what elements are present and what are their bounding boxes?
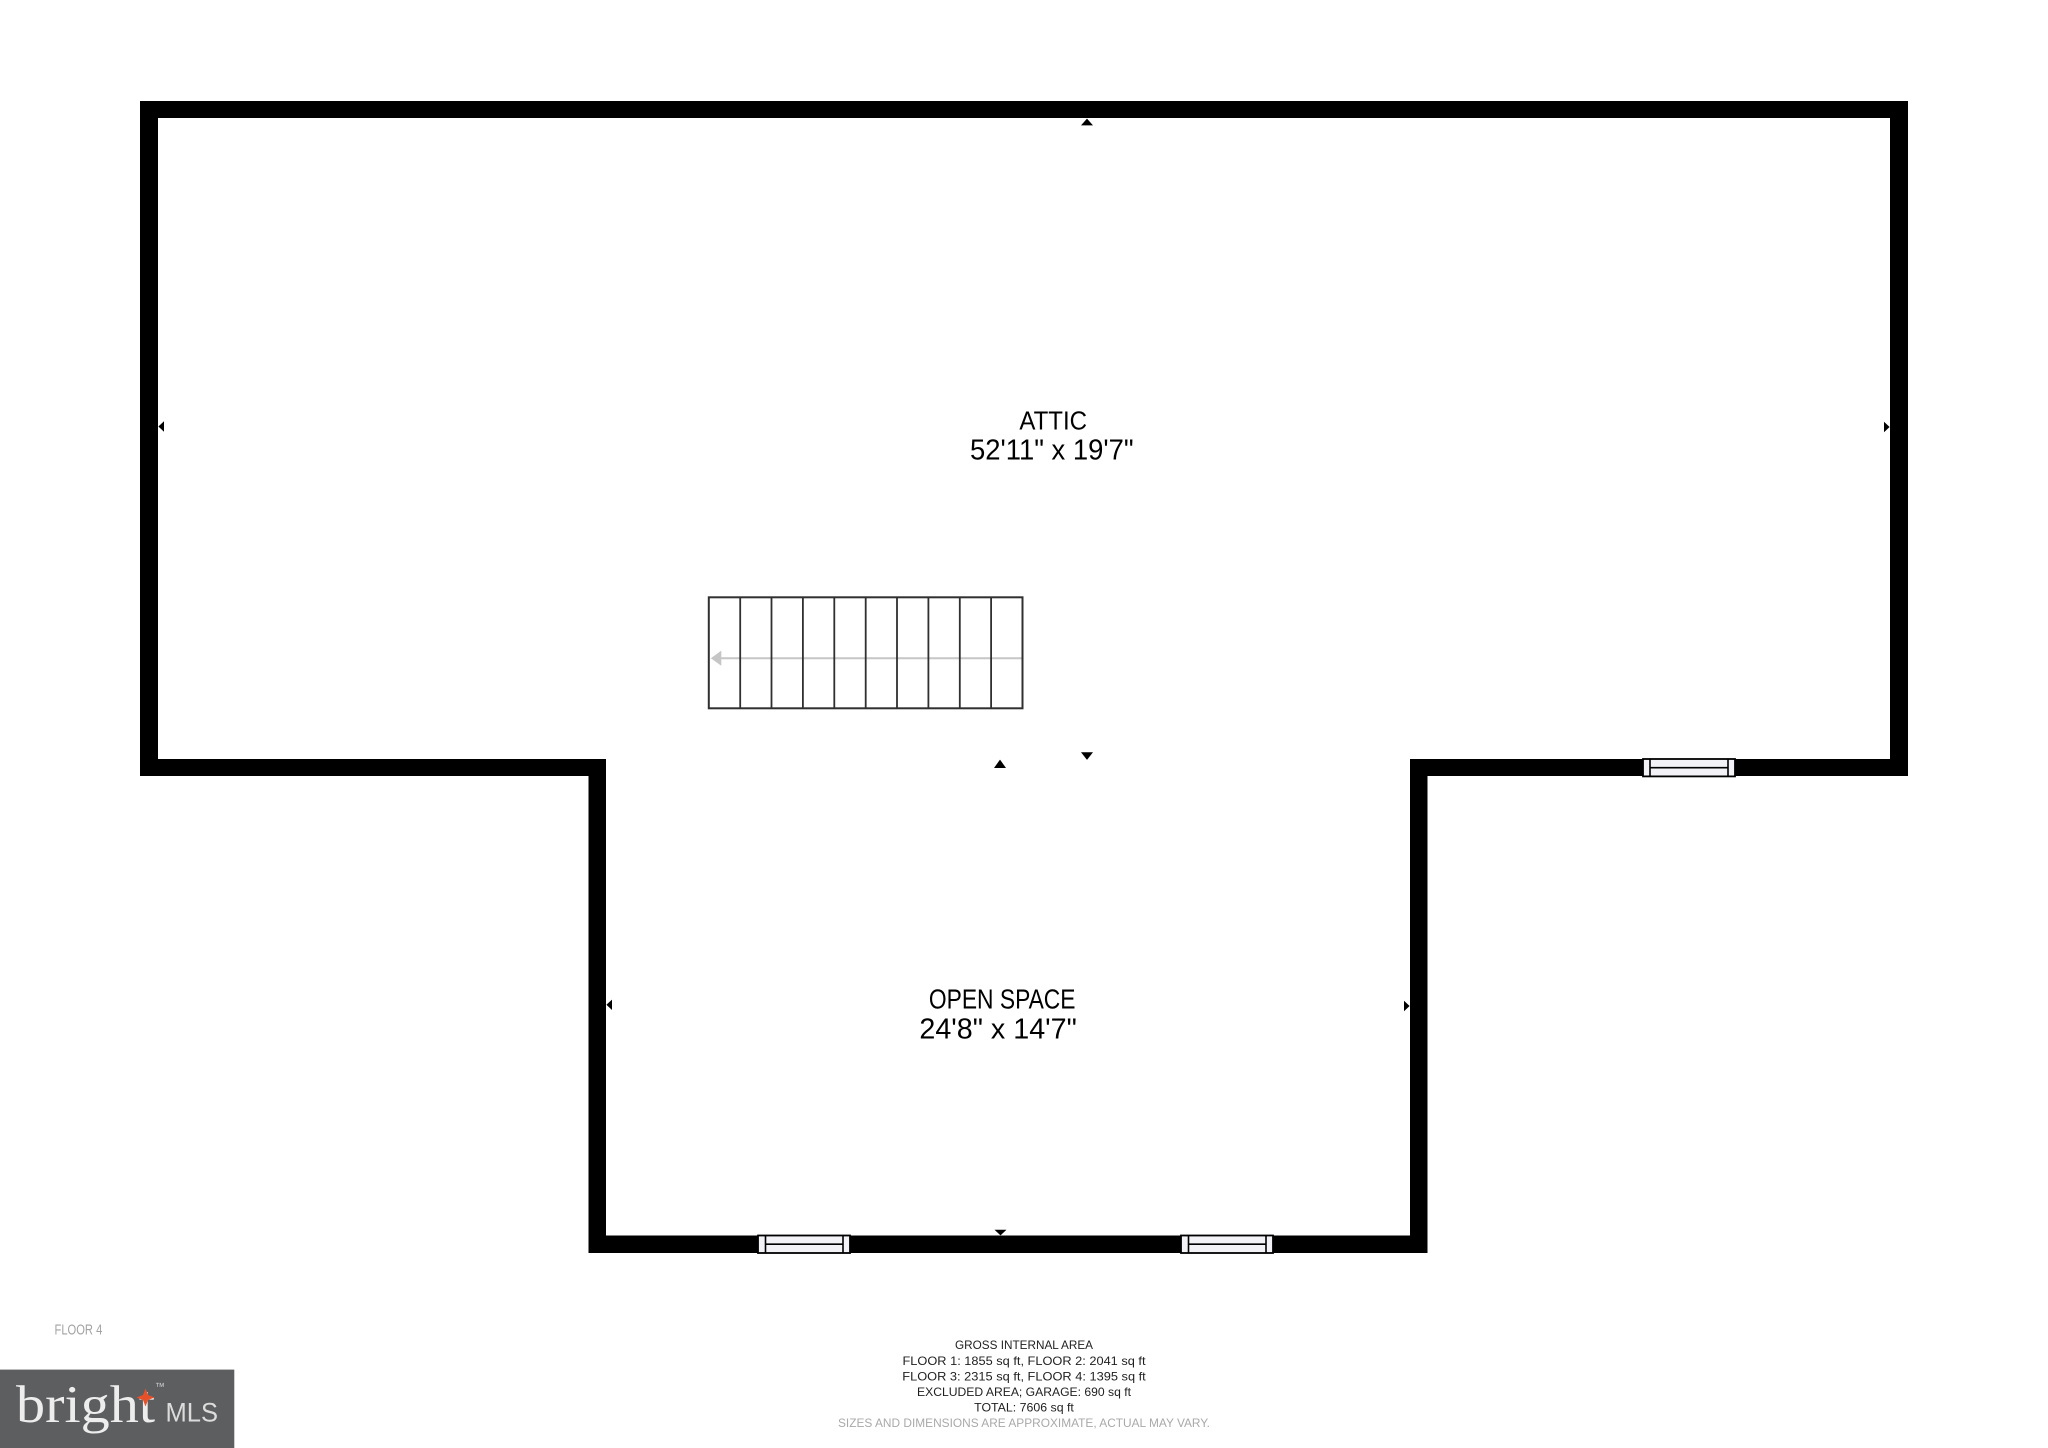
svg-text:ATTIC: ATTIC [1019, 406, 1087, 436]
svg-text:52'11" x 19'7": 52'11" x 19'7" [970, 435, 1134, 467]
svg-text:FLOOR 1: 1855 sq ft, FLOOR 2:: FLOOR 1: 1855 sq ft, FLOOR 2: 2041 sq ft [903, 1354, 1147, 1368]
svg-text:™: ™ [155, 1381, 165, 1393]
svg-text:TOTAL: 7606 sq ft: TOTAL: 7606 sq ft [974, 1401, 1074, 1415]
svg-text:24'8" x 14'7": 24'8" x 14'7" [919, 1014, 1076, 1046]
svg-text:OPEN SPACE: OPEN SPACE [929, 983, 1076, 1014]
svg-text:FLOOR 3: 2315 sq ft, FLOOR 4:: FLOOR 3: 2315 sq ft, FLOOR 4: 1395 sq ft [902, 1369, 1146, 1383]
svg-text:MLS: MLS [166, 1398, 219, 1428]
svg-text:SIZES AND DIMENSIONS ARE APPRO: SIZES AND DIMENSIONS ARE APPROXIMATE, AC… [838, 1416, 1210, 1430]
svg-text:GROSS INTERNAL AREA: GROSS INTERNAL AREA [955, 1338, 1093, 1352]
svg-text:bright: bright [16, 1376, 155, 1434]
svg-text:EXCLUDED AREA; GARAGE: 690 sq: EXCLUDED AREA; GARAGE: 690 sq ft [917, 1385, 1132, 1399]
svg-text:FLOOR 4: FLOOR 4 [55, 1322, 103, 1338]
